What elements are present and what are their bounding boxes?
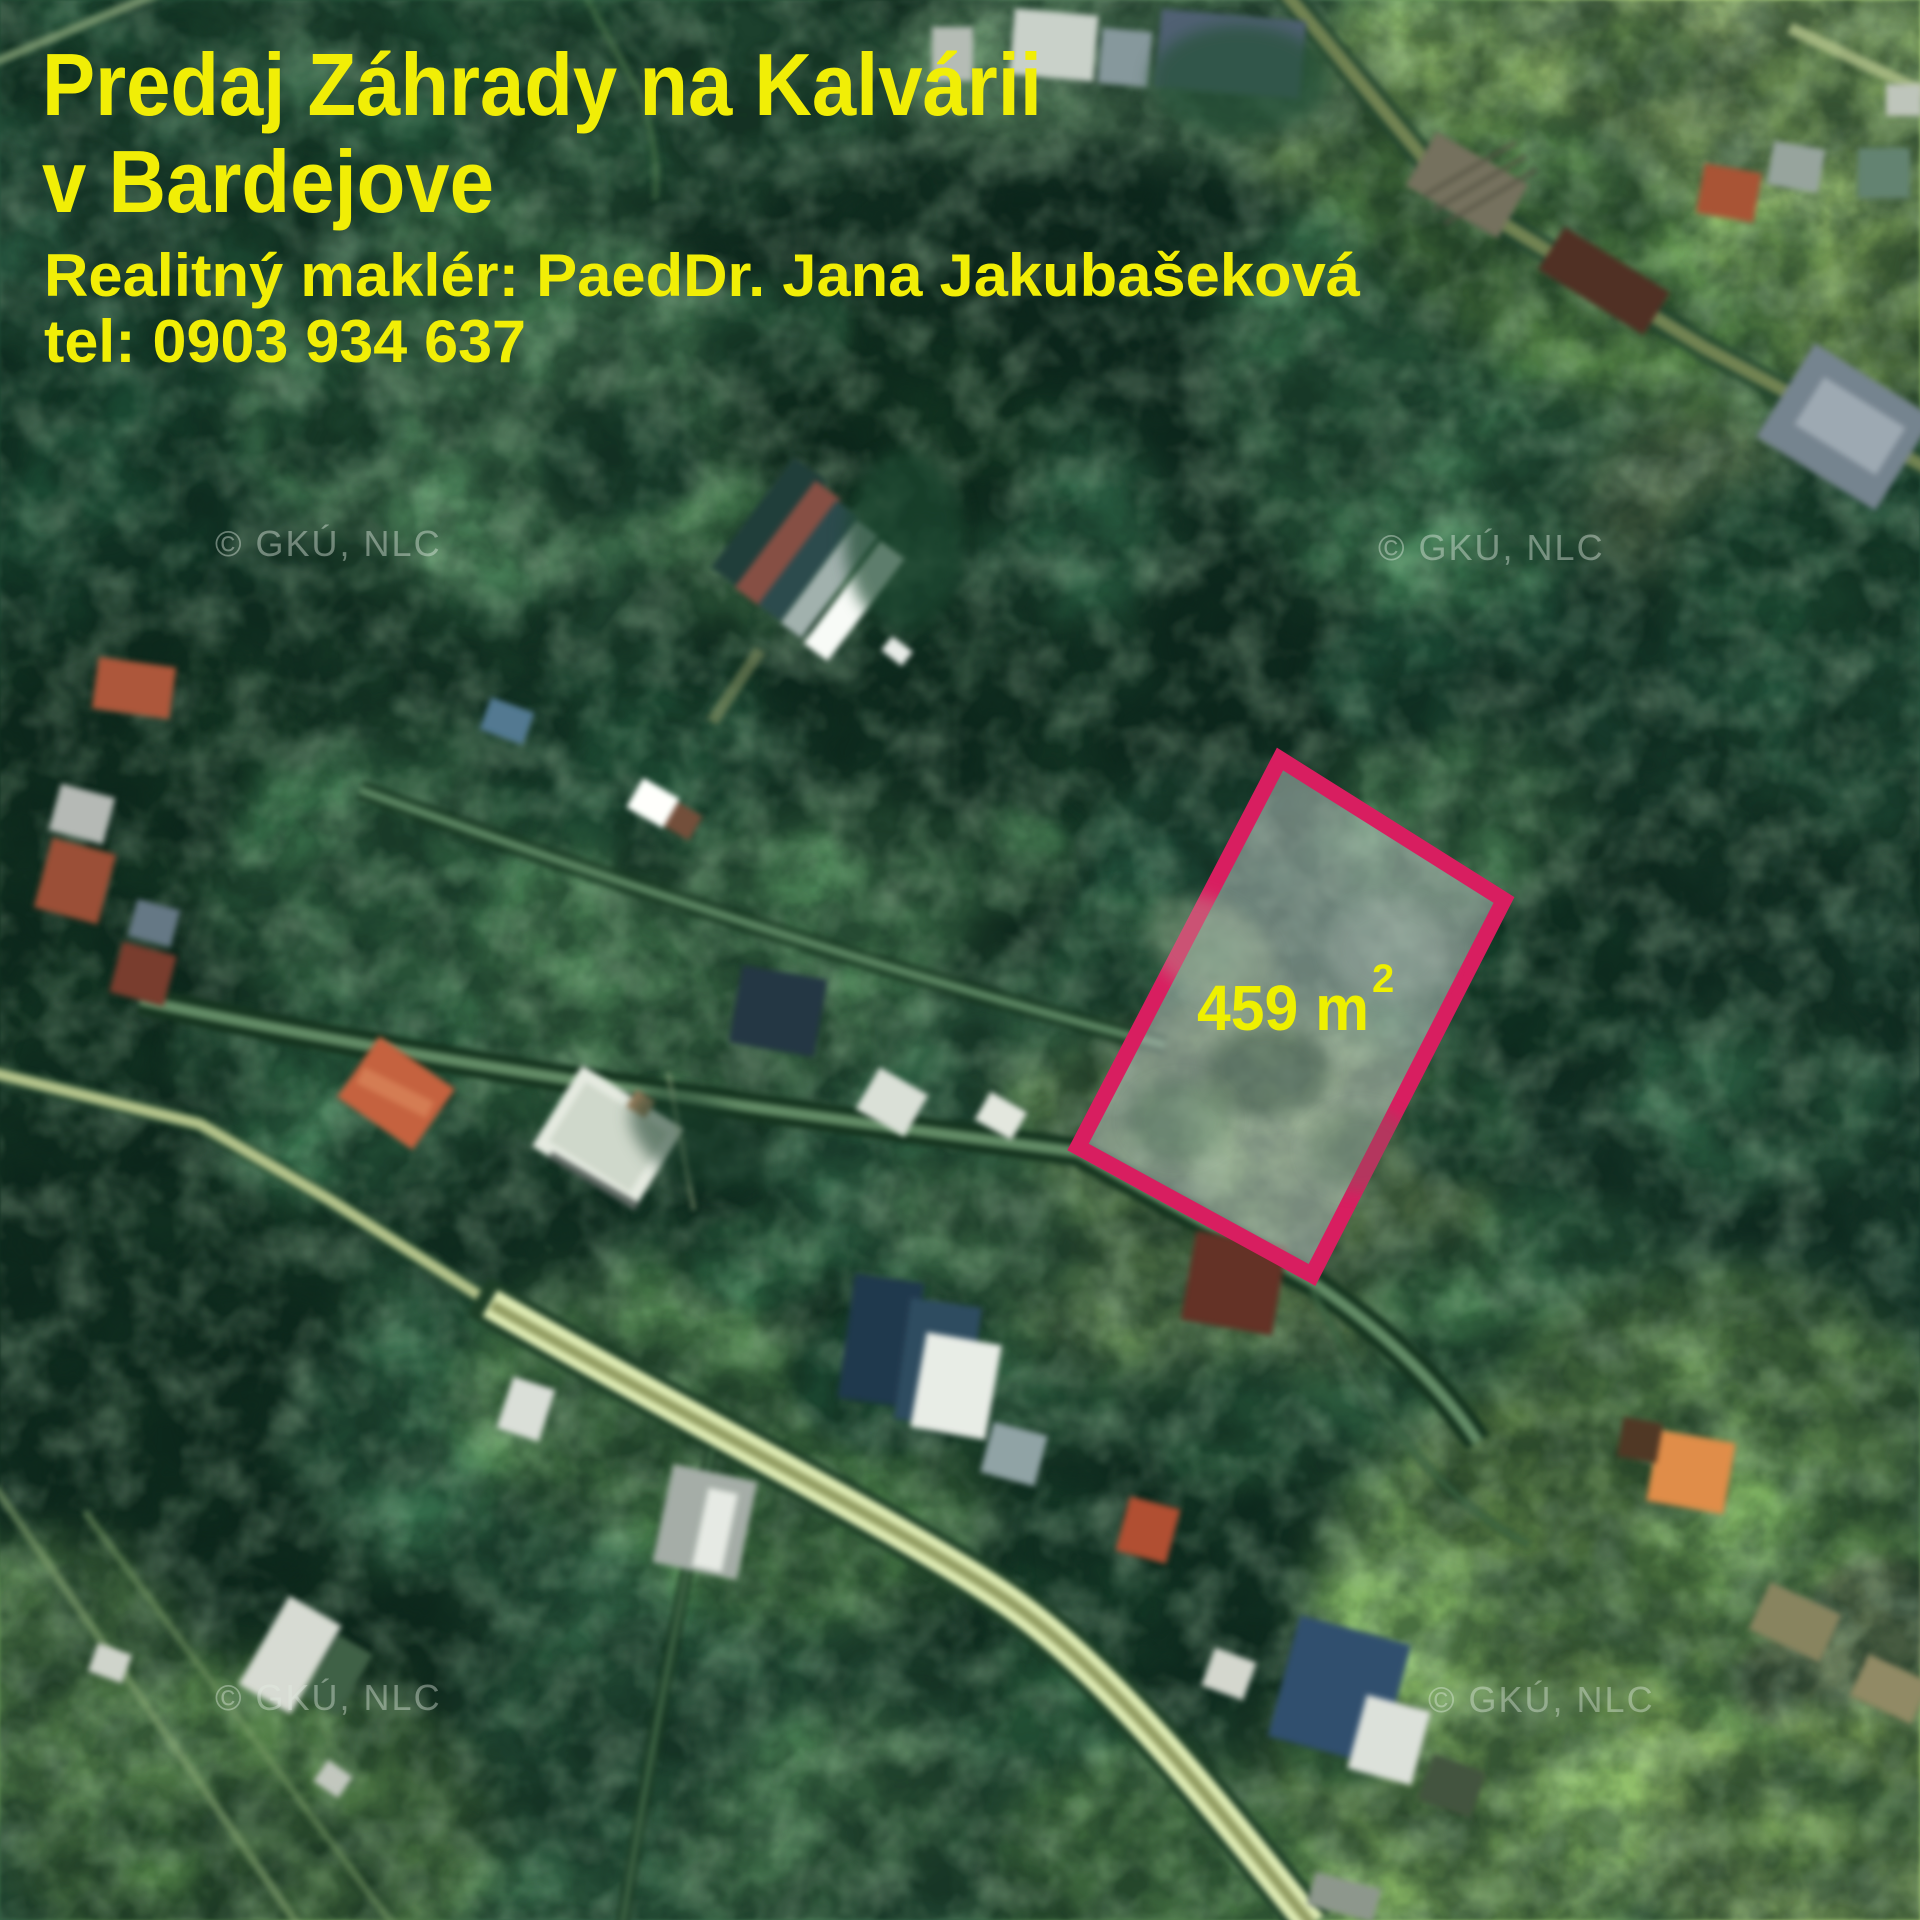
- svg-text:Predaj Záhrady na Kalvárii: Predaj Záhrady na Kalvárii: [42, 35, 1042, 134]
- svg-text:tel: 0903 934 637: tel: 0903 934 637: [44, 308, 526, 375]
- svg-text:2: 2: [1372, 957, 1394, 1001]
- svg-text:v Bardejove: v Bardejove: [42, 132, 494, 231]
- svg-text:459 m: 459 m: [1197, 972, 1369, 1044]
- svg-text:© GKÚ, NLC: © GKÚ, NLC: [1378, 527, 1605, 568]
- svg-text:© GKÚ, NLC: © GKÚ, NLC: [1428, 1679, 1655, 1720]
- svg-text:Realitný maklér: PaedDr. Jana: Realitný maklér: PaedDr. Jana Jakubašeko…: [44, 242, 1361, 309]
- svg-text:© GKÚ, NLC: © GKÚ, NLC: [215, 1677, 442, 1718]
- svg-text:© GKÚ, NLC: © GKÚ, NLC: [215, 523, 442, 564]
